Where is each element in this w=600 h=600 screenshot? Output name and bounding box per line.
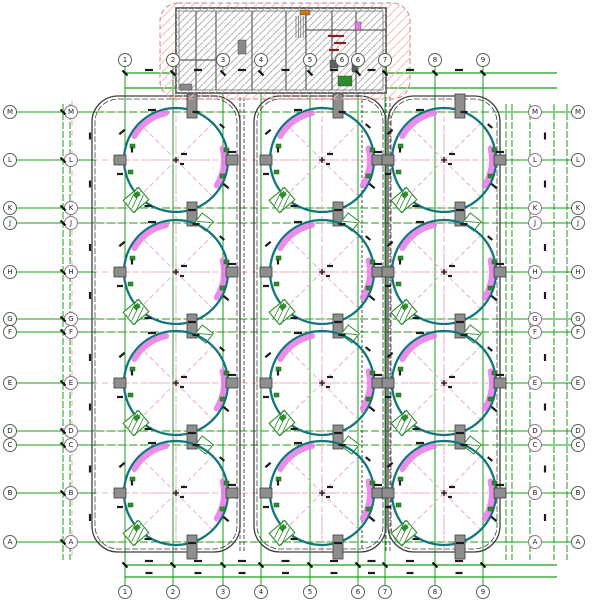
tank: [382, 220, 506, 343]
col-bubble-top: 8: [429, 54, 442, 67]
valve-bit: [488, 397, 493, 401]
annotation-mark: [413, 205, 420, 207]
tank-diagonal: [176, 272, 212, 308]
svg-text:9: 9: [481, 588, 485, 596]
building-detail: [338, 76, 352, 86]
svg-text:8: 8: [433, 588, 437, 596]
annotation-mark: [369, 295, 376, 301]
annotation-mark: [119, 241, 126, 247]
tank-diagonal: [286, 272, 322, 308]
platform-arc: [134, 336, 166, 359]
row-pad: [455, 535, 465, 559]
annotation-mark: [119, 129, 126, 135]
annotation-mark: [265, 462, 272, 468]
svg-text:D: D: [68, 427, 73, 435]
annotation-mark: [374, 484, 382, 486]
row-bubble-inner-right: J: [529, 217, 542, 230]
column-pad: [382, 155, 394, 165]
annotation-mark: [544, 292, 546, 299]
annotation-mark: [544, 181, 546, 188]
annotation-mark: [413, 428, 420, 430]
annotation-mark: [448, 163, 452, 165]
valve-bit: [130, 477, 135, 481]
annotation-mark: [334, 42, 346, 44]
building-detail: [238, 40, 246, 54]
tank-diagonal: [322, 383, 358, 419]
svg-text:A: A: [533, 538, 538, 546]
annotation-mark: [339, 334, 346, 336]
column-pad: [114, 378, 126, 388]
annotation-mark: [219, 123, 225, 129]
annotation-mark: [487, 123, 493, 129]
row-bubble-inner-right: H: [529, 266, 542, 279]
tank-diagonal: [286, 493, 322, 529]
valve-bit: [396, 282, 401, 286]
annotation-mark: [294, 332, 302, 334]
svg-text:H: H: [7, 268, 12, 276]
annotation-mark: [491, 516, 498, 522]
annotation-mark: [327, 376, 333, 378]
tank: [114, 441, 238, 559]
valve-bit: [220, 174, 225, 178]
annotation-mark: [117, 173, 123, 175]
annotation-mark: [365, 235, 371, 241]
annotation-mark: [368, 572, 375, 574]
svg-text:G: G: [7, 315, 12, 323]
svg-text:3: 3: [221, 56, 225, 64]
svg-text:6: 6: [340, 56, 345, 64]
annotation-mark: [193, 444, 200, 446]
annotation-mark: [291, 428, 298, 430]
col-bubble-top: 1: [119, 54, 132, 67]
annotation-mark: [89, 404, 91, 411]
annotation-mark: [491, 295, 498, 301]
row-bubble-outer-right: M: [572, 106, 585, 119]
annotation-mark: [263, 173, 269, 175]
annotation-mark: [416, 109, 424, 111]
annotation-mark: [334, 432, 342, 434]
annotation-mark: [228, 374, 236, 376]
row-bubble-inner-left: B: [65, 487, 78, 500]
svg-text:5: 5: [308, 56, 312, 64]
tank-diagonal: [444, 160, 480, 196]
annotation-mark: [413, 317, 420, 319]
row-bubble-outer-right: L: [572, 154, 585, 167]
valve-bit: [398, 144, 403, 148]
row-bubble-inner-right: A: [529, 536, 542, 549]
annotation-mark: [265, 352, 272, 358]
annotation-mark: [544, 133, 546, 140]
column-pad: [226, 488, 238, 498]
annotation-mark: [369, 516, 376, 522]
annotation-mark: [496, 151, 504, 153]
annotation-mark: [374, 263, 382, 265]
annotation-mark: [89, 244, 91, 251]
svg-text:1: 1: [123, 56, 127, 64]
tank-diagonal: [176, 493, 212, 529]
col-bubble-bottom: 4: [255, 586, 268, 599]
annotation-mark: [448, 496, 452, 498]
annotation-mark: [413, 538, 420, 540]
tank-diagonal: [140, 493, 176, 529]
valve-bit: [276, 477, 281, 481]
valve-bit: [130, 144, 135, 148]
tank: [382, 331, 506, 454]
svg-text:J: J: [533, 219, 536, 227]
annotation-mark: [219, 235, 225, 241]
annotation-mark: [223, 406, 230, 412]
annotation-mark: [544, 404, 546, 411]
row-bubble-inner-left: H: [65, 266, 78, 279]
row-bubble-outer-left: J: [4, 217, 17, 230]
annotation-mark: [334, 209, 342, 211]
annotation-mark: [374, 374, 382, 376]
annotation-mark: [399, 148, 401, 153]
svg-text:L: L: [576, 156, 580, 164]
row-bubble-inner-right: D: [529, 425, 542, 438]
valve-bit: [398, 367, 403, 371]
annotation-mark: [181, 265, 187, 267]
row-bubble-outer-right: E: [572, 377, 585, 390]
annotation-mark: [368, 69, 376, 71]
valve-bit: [128, 170, 133, 174]
platform-arc: [217, 481, 224, 518]
annotation-mark: [238, 69, 246, 71]
svg-text:C: C: [576, 441, 581, 449]
column-pad: [494, 155, 506, 165]
svg-text:G: G: [68, 315, 73, 323]
annotation-mark: [334, 321, 342, 323]
annotation-mark: [194, 69, 202, 71]
annotation-mark: [385, 396, 391, 398]
annotation-mark: [330, 560, 338, 562]
tank-diagonal: [322, 493, 358, 529]
annotation-mark: [89, 514, 91, 521]
annotation-mark: [461, 223, 468, 225]
tank-diagonal: [444, 493, 480, 529]
annotation-mark: [385, 285, 391, 287]
tank-diagonal: [408, 457, 444, 493]
annotation-mark: [277, 260, 279, 265]
annotation-mark: [223, 295, 230, 301]
tank-diagonal: [286, 160, 322, 196]
tank-diagonal: [322, 160, 358, 196]
annotation-mark: [399, 260, 401, 265]
row-bubble-outer-left: G: [4, 313, 17, 326]
annotation-mark: [145, 317, 152, 319]
col-bubble-top: 3: [217, 54, 230, 67]
annotation-mark: [193, 223, 200, 225]
row-bubble-inner-left: E: [65, 377, 78, 390]
annotation-mark: [416, 442, 424, 444]
col-bubble-bottom: 3: [217, 586, 230, 599]
annotation-mark: [449, 376, 455, 378]
col-bubble-bottom: 5: [304, 586, 317, 599]
svg-text:D: D: [7, 427, 12, 435]
valve-bit: [130, 256, 135, 260]
annotation-mark: [180, 275, 184, 277]
platform-arc: [485, 371, 492, 408]
annotation-mark: [456, 542, 464, 544]
annotation-mark: [228, 151, 236, 153]
col-bubble-top: 9: [477, 54, 490, 67]
column-pad: [260, 155, 272, 165]
tank-diagonal: [140, 457, 176, 493]
svg-text:6: 6: [356, 56, 361, 64]
row-bubble-outer-right: D: [572, 425, 585, 438]
tank: [382, 441, 506, 559]
annotation-mark: [193, 111, 200, 113]
row-bubble-inner-right: L: [529, 154, 542, 167]
valve-bit: [398, 256, 403, 260]
row-bubble-outer-right: H: [572, 266, 585, 279]
annotation-mark: [181, 376, 187, 378]
column-pad: [494, 378, 506, 388]
annotation-mark: [194, 560, 202, 562]
row-bubble-outer-left: D: [4, 425, 17, 438]
platform-arc: [363, 260, 370, 297]
platform-arc: [134, 446, 166, 469]
row-bubble-inner-right: C: [529, 439, 542, 452]
col-bubble-top: 2: [167, 54, 180, 67]
svg-text:D: D: [532, 427, 537, 435]
tank-diagonal: [140, 160, 176, 196]
annotation-mark: [294, 442, 302, 444]
annotation-mark: [277, 481, 279, 486]
annotation-mark: [544, 354, 546, 361]
svg-text:7: 7: [383, 588, 387, 596]
row-bubble-outer-left: B: [4, 487, 17, 500]
annotation-mark: [334, 542, 342, 544]
row-bubble-inner-left: M: [65, 106, 78, 119]
row-bubble-inner-right: F: [529, 326, 542, 339]
annotation-mark: [181, 486, 187, 488]
tank-diagonal: [408, 347, 444, 383]
annotation-mark: [117, 396, 123, 398]
tank: [260, 331, 384, 454]
valve-bit: [396, 503, 401, 507]
row-bubble-inner-right: G: [529, 313, 542, 326]
annotation-mark: [456, 432, 464, 434]
col-bubble-top: 7: [379, 54, 392, 67]
annotation-mark: [223, 516, 230, 522]
row-bubble-inner-left: A: [65, 536, 78, 549]
valve-bit: [276, 367, 281, 371]
annotation-mark: [219, 456, 225, 462]
valve-bit: [274, 393, 279, 397]
valve-bit: [488, 286, 493, 290]
svg-text:L: L: [69, 156, 73, 164]
svg-text:B: B: [576, 489, 581, 497]
valve-bit: [130, 367, 135, 371]
svg-text:A: A: [69, 538, 74, 546]
annotation-mark: [265, 129, 272, 135]
tank-diagonal: [286, 347, 322, 383]
column-pad: [114, 488, 126, 498]
row-bubble-outer-left: A: [4, 536, 17, 549]
svg-text:F: F: [533, 328, 537, 336]
col-bubble-bottom: 1: [119, 586, 132, 599]
annotation-mark: [265, 241, 272, 247]
platform-arc: [363, 148, 370, 185]
svg-text:M: M: [68, 108, 74, 116]
annotation-mark: [277, 148, 279, 153]
row-pad: [333, 535, 343, 559]
valve-bit: [276, 256, 281, 260]
platform-arc: [402, 113, 434, 136]
annotation-mark: [145, 560, 153, 562]
annotation-mark: [407, 572, 414, 574]
annotation-mark: [89, 466, 91, 473]
row-bubble-inner-left: L: [65, 154, 78, 167]
col-bubble-top: 4: [255, 54, 268, 67]
annotation-mark: [385, 173, 391, 175]
annotation-mark: [195, 572, 202, 574]
col-bubble-bottom: 6: [352, 586, 365, 599]
row-bubble-outer-right: K: [572, 202, 585, 215]
annotation-mark: [89, 181, 91, 188]
column-pad: [226, 155, 238, 165]
svg-text:B: B: [533, 489, 538, 497]
valve-bit: [276, 144, 281, 148]
annotation-mark: [365, 123, 371, 129]
annotation-mark: [544, 514, 546, 521]
col-bubble-top-extra: 6: [336, 54, 349, 67]
svg-text:8: 8: [433, 56, 437, 64]
tank-diagonal: [286, 457, 322, 493]
annotation-mark: [330, 69, 338, 71]
annotation-mark: [117, 506, 123, 508]
platform-arc: [134, 113, 166, 136]
annotation-mark: [491, 183, 498, 189]
annotation-mark: [456, 572, 463, 574]
valve-bit: [220, 286, 225, 290]
row-pad: [455, 94, 465, 118]
platform-arc: [485, 481, 492, 518]
annotation-mark: [339, 223, 346, 225]
column-pad: [226, 378, 238, 388]
svg-text:5: 5: [308, 588, 312, 596]
column-pad: [114, 267, 126, 277]
tank-diagonal: [408, 124, 444, 160]
column-pad: [260, 378, 272, 388]
column-pad: [382, 488, 394, 498]
svg-text:7: 7: [383, 56, 387, 64]
building-detail: [355, 22, 361, 30]
annotation-mark: [180, 496, 184, 498]
annotation-mark: [406, 560, 414, 562]
tank-diagonal: [444, 272, 480, 308]
svg-text:2: 2: [171, 588, 175, 596]
annotation-mark: [148, 332, 156, 334]
annotation-mark: [449, 486, 455, 488]
annotation-mark: [331, 572, 338, 574]
row-bubble-outer-left: L: [4, 154, 17, 167]
annotation-mark: [448, 386, 452, 388]
annotation-mark: [449, 265, 455, 267]
col-bubble-bottom: 2: [167, 586, 180, 599]
column-pad: [494, 488, 506, 498]
annotation-mark: [148, 109, 156, 111]
annotation-mark: [455, 560, 463, 562]
svg-text:M: M: [7, 108, 13, 116]
valve-bit: [274, 282, 279, 286]
platform-arc: [485, 260, 492, 297]
annotation-mark: [294, 109, 302, 111]
building-hatch: [176, 8, 386, 93]
tank-diagonal: [408, 383, 444, 419]
tank: [114, 220, 238, 343]
annotation-mark: [449, 153, 455, 155]
svg-text:H: H: [68, 268, 73, 276]
annotation-mark: [263, 506, 269, 508]
valve-bit: [128, 503, 133, 507]
row-bubble-inner-right: K: [529, 202, 542, 215]
svg-text:9: 9: [481, 56, 485, 64]
svg-text:4: 4: [259, 588, 264, 596]
annotation-mark: [544, 244, 546, 251]
svg-text:2: 2: [171, 56, 175, 64]
row-bubble-outer-right: B: [572, 487, 585, 500]
svg-text:A: A: [8, 538, 13, 546]
tank-diagonal: [140, 124, 176, 160]
valve-bit: [220, 397, 225, 401]
annotation-mark: [496, 263, 504, 265]
annotation-mark: [146, 572, 153, 574]
svg-text:G: G: [532, 315, 537, 323]
annotation-mark: [219, 346, 225, 352]
annotation-mark: [487, 346, 493, 352]
annotation-mark: [282, 69, 290, 71]
row-bubble-outer-left: M: [4, 106, 17, 119]
platform-arc: [217, 371, 224, 408]
annotation-mark: [496, 484, 504, 486]
annotation-mark: [416, 221, 424, 223]
row-bubble-inner-left: J: [65, 217, 78, 230]
annotation-mark: [327, 486, 333, 488]
annotation-mark: [365, 346, 371, 352]
tank-diagonal: [140, 347, 176, 383]
svg-text:C: C: [69, 441, 74, 449]
platform-arc: [485, 148, 492, 185]
svg-text:D: D: [575, 427, 580, 435]
svg-text:4: 4: [259, 56, 264, 64]
pump-house-layer: [160, 3, 410, 99]
tank-diagonal: [408, 272, 444, 308]
annotation-mark: [119, 352, 126, 358]
annotation-mark: [131, 481, 133, 486]
platform-arc: [217, 148, 224, 185]
valve-bit: [128, 393, 133, 397]
annotation-mark: [456, 321, 464, 323]
valve-bit: [488, 507, 493, 511]
annotation-mark: [326, 496, 330, 498]
svg-text:E: E: [69, 379, 73, 387]
annotation-mark: [339, 444, 346, 446]
column-pad: [382, 378, 394, 388]
annotation-mark: [328, 35, 344, 37]
annotation-mark: [89, 292, 91, 299]
annotation-mark: [228, 484, 236, 486]
row-bubble-outer-left: F: [4, 326, 17, 339]
platform-arc: [363, 371, 370, 408]
platform-arc: [280, 446, 312, 469]
row-bubble-outer-left: H: [4, 266, 17, 279]
annotation-mark: [448, 275, 452, 277]
svg-text:K: K: [533, 204, 538, 212]
annotation-mark: [119, 462, 126, 468]
annotation-mark: [228, 263, 236, 265]
